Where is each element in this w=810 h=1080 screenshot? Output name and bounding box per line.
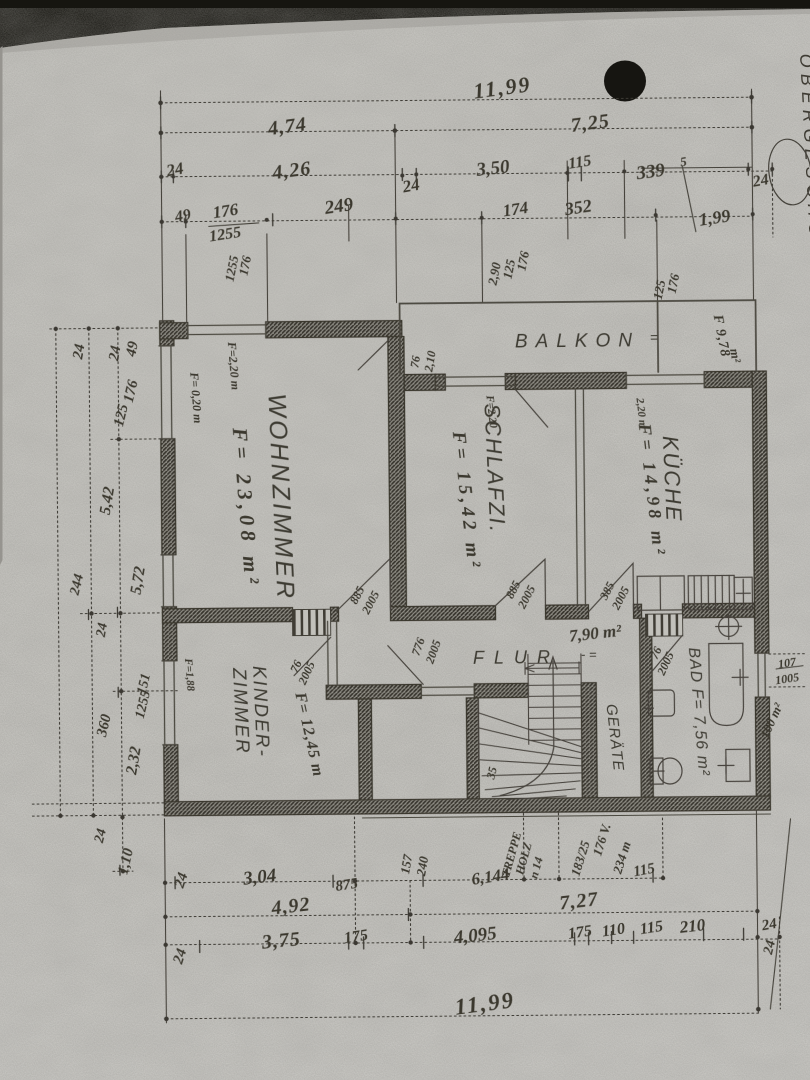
svg-text:24: 24 xyxy=(106,344,124,363)
svg-text:FLUR: FLUR xyxy=(473,647,560,668)
svg-text:3,50: 3,50 xyxy=(474,156,511,181)
svg-text:339: 339 xyxy=(634,160,666,185)
svg-text:115: 115 xyxy=(639,918,664,938)
svg-text:24: 24 xyxy=(750,171,770,191)
svg-text:175: 175 xyxy=(343,927,369,947)
svg-text:3,04: 3,04 xyxy=(241,865,277,890)
svg-text:110: 110 xyxy=(601,920,626,940)
svg-text:176: 176 xyxy=(211,200,240,223)
svg-text:174: 174 xyxy=(501,198,529,221)
svg-text:875: 875 xyxy=(334,876,359,895)
svg-text:76: 76 xyxy=(407,355,423,369)
svg-text:=: = xyxy=(650,329,658,345)
svg-text:24: 24 xyxy=(94,622,111,639)
svg-text:24: 24 xyxy=(164,159,185,181)
svg-text:4,92: 4,92 xyxy=(269,893,311,919)
svg-text:249: 249 xyxy=(322,194,355,219)
svg-text:24: 24 xyxy=(400,175,421,197)
svg-text:107: 107 xyxy=(777,654,798,671)
svg-text:BALKON: BALKON xyxy=(515,330,640,352)
svg-text:115: 115 xyxy=(567,152,592,172)
svg-text:210: 210 xyxy=(678,915,707,937)
svg-text:175: 175 xyxy=(567,922,593,942)
svg-text:- =: - = xyxy=(581,647,597,662)
svg-text:24: 24 xyxy=(70,342,88,361)
svg-text:7,27: 7,27 xyxy=(558,888,599,914)
svg-text:352: 352 xyxy=(562,195,593,219)
svg-text:49: 49 xyxy=(173,206,193,226)
svg-text:ZIMMER: ZIMMER xyxy=(228,666,253,755)
svg-text:3,75: 3,75 xyxy=(260,928,302,954)
